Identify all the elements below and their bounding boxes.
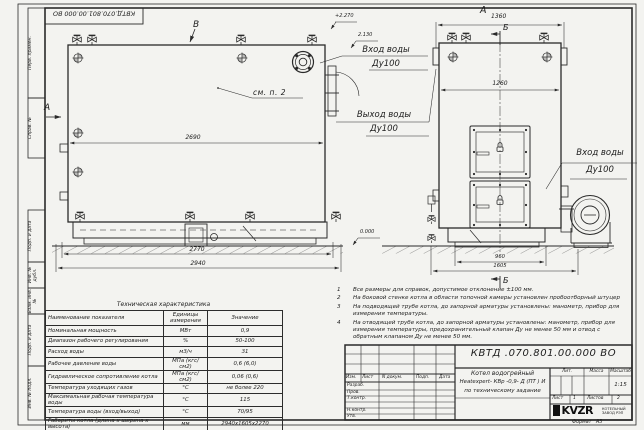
label-outlet-dn100: Ду100	[338, 125, 430, 134]
top-stamp-doc-number: КВТД.070.801.00.000 ВО	[45, 10, 143, 16]
title-block-doc-number: КВТД .070.801.00.000 ВО	[457, 349, 630, 359]
tb-sheets-label: Листов	[587, 397, 603, 401]
note-item: 1 Все размеры для справок, допустимое от…	[334, 287, 628, 294]
spec-cell: °С	[164, 407, 208, 418]
spec-cell: 115	[208, 394, 283, 407]
spec-row: Габариты котла (длина х ширина х высота)…	[46, 417, 283, 430]
tb-row-utv: Утв.	[347, 415, 356, 419]
note-text: На отводящей трубе котла, до запорной ар…	[353, 320, 628, 342]
tb-row-razrab: Разраб.	[347, 384, 364, 388]
logo-text: KVZR	[562, 404, 593, 417]
tb-mass-label: Масса	[584, 370, 609, 374]
spec-cell: МПа (кгс/см2)	[164, 357, 208, 370]
spec-row: Температура воды (вход/выход)°С70/95	[46, 407, 283, 418]
tb-scale-label: Масштаб	[609, 370, 632, 374]
spec-cell: Расход воды	[46, 347, 164, 358]
tb-row-prov: Пров.	[347, 391, 360, 395]
label-inlet-dn100: Ду100	[344, 60, 428, 69]
spec-cell: мм	[164, 417, 208, 430]
spec-header-value: Значение	[208, 311, 283, 326]
spec-cell: 70/95	[208, 407, 283, 418]
spec-cell: МВт	[164, 326, 208, 337]
tb-sheet-label: Лист	[552, 397, 563, 401]
spec-header-row: Наименование показателя Единицы измерени…	[46, 311, 283, 326]
spec-cell: °С	[164, 394, 208, 407]
spec-cell: 0,06 (0,6)	[208, 370, 283, 383]
tb-header-izm: Изм.	[346, 376, 356, 380]
spec-cell: м3/ч	[164, 347, 208, 358]
spec-cell: %	[164, 336, 208, 347]
dim-2940: 2940	[173, 261, 223, 267]
margin-label-vzam-inv: Взам. инв. №	[28, 288, 38, 314]
spec-cell: не более 220	[208, 383, 283, 394]
tb-header-dokum: N докум.	[382, 376, 402, 380]
spec-row: Рабочее давление водыМПа (кгс/см2)0,6 (6…	[46, 357, 283, 370]
spec-cell: 2940х1605х2270	[208, 417, 283, 430]
tb-header-list: Лист	[362, 376, 373, 380]
note-number: 1	[334, 287, 353, 294]
spec-cell: Температура уходящих газов	[46, 383, 164, 394]
tb-name-line3: по техническому задание	[455, 389, 550, 395]
note-number: 2	[334, 295, 353, 302]
tb-header-podp: Подп.	[416, 376, 429, 380]
spec-row: Гидравлическое сопротивление котлаМПа (к…	[46, 370, 283, 383]
spec-row: Диапазон рабочего регулирования%50-100	[46, 336, 283, 347]
tb-lit-label: Лит.	[550, 370, 584, 374]
spec-cell: °С	[164, 383, 208, 394]
margin-label-inv-podl: Инв. № подл.	[28, 366, 33, 420]
margin-label-sprav-no: Справ. №	[28, 98, 33, 158]
margin-label-podp-data-2: Подп. и дата	[28, 314, 33, 366]
elevation-2130: 2.130	[358, 33, 372, 38]
drawing-sheet: КВТД.070.801.00.000 ВО Перв. примен. Спр…	[0, 0, 644, 430]
elevation-0000: 0.000	[360, 230, 374, 235]
tb-scale-value: 1:15	[609, 383, 632, 389]
callout-see-item-2: см. п. 2	[253, 89, 286, 97]
front-view-linework	[52, 35, 359, 253]
spec-cell: Гидравлическое сопротивление котла	[46, 370, 164, 383]
spec-row: Температура уходящих газов°Сне более 220	[46, 383, 283, 394]
margin-label-podp-data-1: Подп. и дата	[28, 210, 33, 262]
logo-mark-icon	[553, 405, 560, 416]
spec-table-title: Техническая характеристика	[45, 302, 282, 308]
spec-header-name: Наименование показателя	[46, 311, 164, 326]
margin-label-perv-primen: Перв. примен.	[28, 8, 33, 98]
spec-cell: Рабочее давление воды	[46, 357, 164, 370]
tb-sheets-value: 2	[617, 397, 620, 401]
note-text: На боковой стенке котла в области топочн…	[353, 295, 628, 302]
note-item: 2 На боковой стенке котла в области топо…	[334, 295, 628, 302]
section-label-b-bottom: Б	[503, 277, 509, 285]
note-item: 3 На подводящей трубе котла, до запорной…	[334, 304, 628, 319]
margin-label-inv-dubl: Инв. № дубл.	[28, 262, 38, 288]
spec-cell: Номинальная мощность	[46, 326, 164, 337]
note-text: На подводящей трубе котла, до запорной а…	[353, 304, 628, 319]
dim-2770: 2770	[172, 247, 222, 253]
label-side-inlet-water: Вход воды	[563, 149, 637, 158]
note-text: Все размеры для справок, допустимое откл…	[353, 287, 628, 294]
tb-header-data: Дата	[439, 376, 450, 380]
section-label-b-top: Б	[503, 24, 509, 32]
spec-cell: Диапазон рабочего регулирования	[46, 336, 164, 347]
spec-cell: Максимальная рабочая температура воды	[46, 394, 164, 407]
company-name: КОТЕЛЬНЫЙ ЗАВОД РЭП	[602, 407, 626, 416]
elevation-plus-2270: +2.270	[335, 14, 354, 19]
tb-name-line1: Котел водогрейный	[455, 371, 550, 377]
label-outlet-water: Выход воды	[338, 111, 430, 120]
note-item: 4 На отводящей трубе котла, до запорной …	[334, 320, 628, 342]
note-number: 4	[334, 320, 353, 342]
label-side-inlet-dn100: Ду100	[563, 166, 637, 175]
company-name-line2: ЗАВОД РЭП	[602, 411, 626, 415]
side-view-title-a: А	[480, 6, 487, 16]
spec-table: Наименование показателя Единицы измерени…	[45, 310, 283, 430]
tb-name-line2: Heatexpert- КВр -0,9- Д (ПТ ) И	[455, 380, 550, 385]
view-arrow-label-a: А	[44, 104, 50, 113]
spec-cell: Габариты котла (длина х ширина х высота)	[46, 417, 164, 430]
notes-list: 1 Все размеры для справок, допустимое от…	[334, 287, 628, 343]
label-inlet-water: Вход воды	[344, 46, 428, 55]
note-number: 3	[334, 304, 353, 319]
spec-cell: 50-100	[208, 336, 283, 347]
spec-cell: 0,6 (6,0)	[208, 357, 283, 370]
format-label: Формат	[572, 421, 591, 426]
spec-cell: 31	[208, 347, 283, 358]
dim-1360: 1360	[491, 14, 506, 20]
spec-cell: Температура воды (вход/выход)	[46, 407, 164, 418]
dim-960: 960	[478, 255, 522, 260]
tb-row-nkontr: Н.контр.	[347, 409, 367, 413]
tb-row-tkontr: Т.контр.	[347, 397, 366, 401]
company-logo: KVZR	[553, 404, 593, 417]
tb-sheet-value: 1	[573, 397, 576, 401]
spec-row: Номинальная мощностьМВт0,9	[46, 326, 283, 337]
spec-header-units: Единицы измерения	[164, 311, 208, 326]
spec-cell: МПа (кгс/см2)	[164, 370, 208, 383]
view-arrow-label-v: В	[193, 21, 199, 30]
spec-row: Расход водым3/ч31	[46, 347, 283, 358]
dim-1260: 1260	[478, 81, 522, 87]
dim-1605: 1605	[478, 264, 522, 269]
spec-cell: 0,9	[208, 326, 283, 337]
spec-row: Максимальная рабочая температура воды°С1…	[46, 394, 283, 407]
format-value: А3	[596, 421, 602, 426]
dim-2690: 2690	[168, 135, 218, 141]
